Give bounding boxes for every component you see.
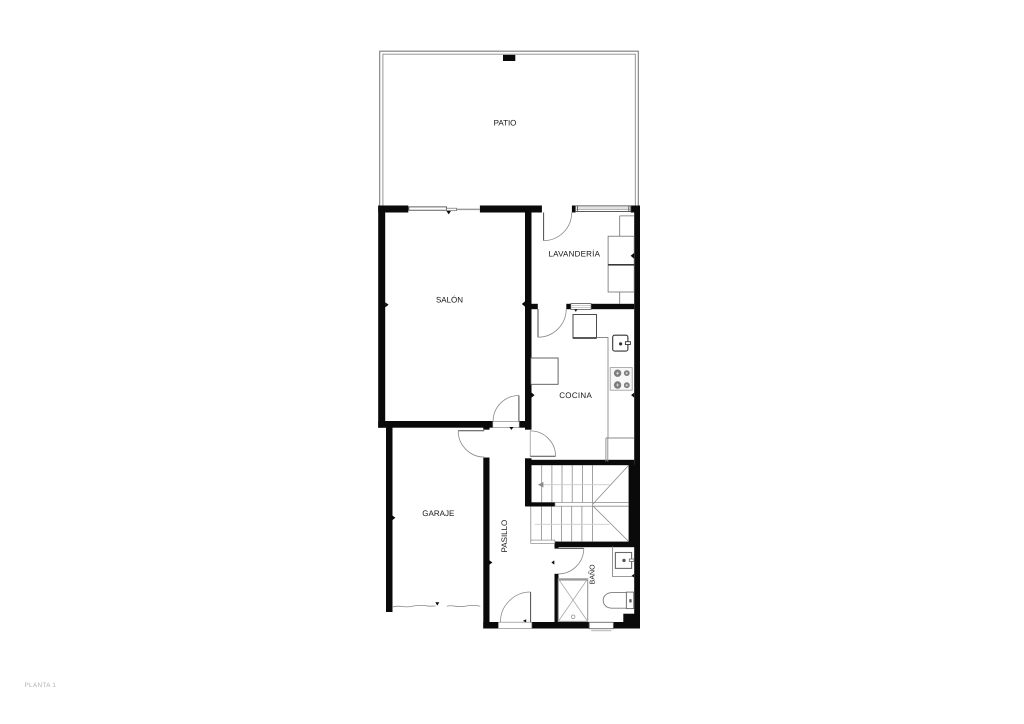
svg-text:PLANTA 1: PLANTA 1 bbox=[25, 682, 57, 689]
svg-text:BAÑO: BAÑO bbox=[588, 564, 597, 584]
svg-text:PATIO: PATIO bbox=[494, 118, 517, 127]
svg-text:LAVANDERÍA: LAVANDERÍA bbox=[548, 250, 600, 259]
svg-text:PASILLO: PASILLO bbox=[500, 520, 509, 553]
svg-text:SALÓN: SALÓN bbox=[436, 295, 463, 304]
svg-text:COCINA: COCINA bbox=[559, 391, 592, 400]
svg-text:GARAJE: GARAJE bbox=[422, 509, 454, 518]
